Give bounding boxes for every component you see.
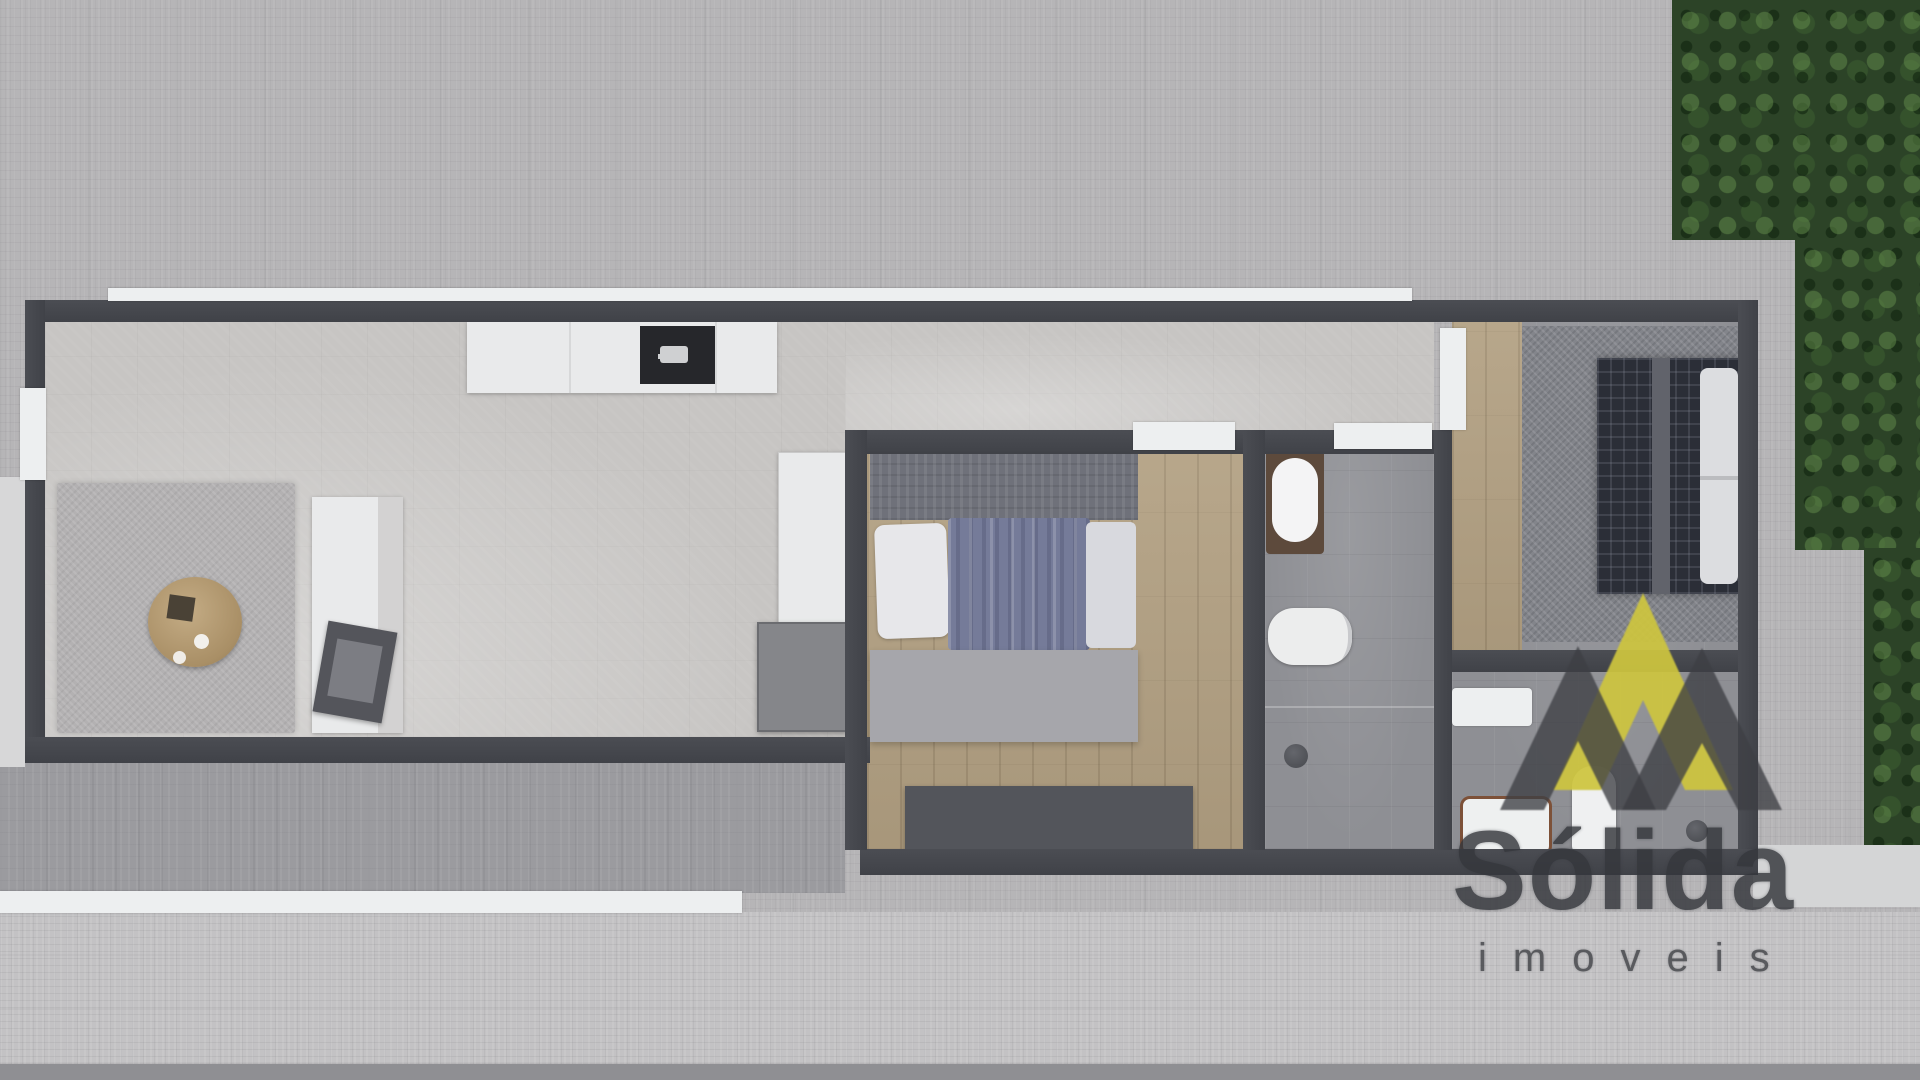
watermark-subtitle: imoveis	[1478, 936, 1796, 981]
floorplan-render: Sólida imoveis	[0, 0, 1920, 1080]
watermark-brand: Sólida	[1452, 806, 1794, 935]
